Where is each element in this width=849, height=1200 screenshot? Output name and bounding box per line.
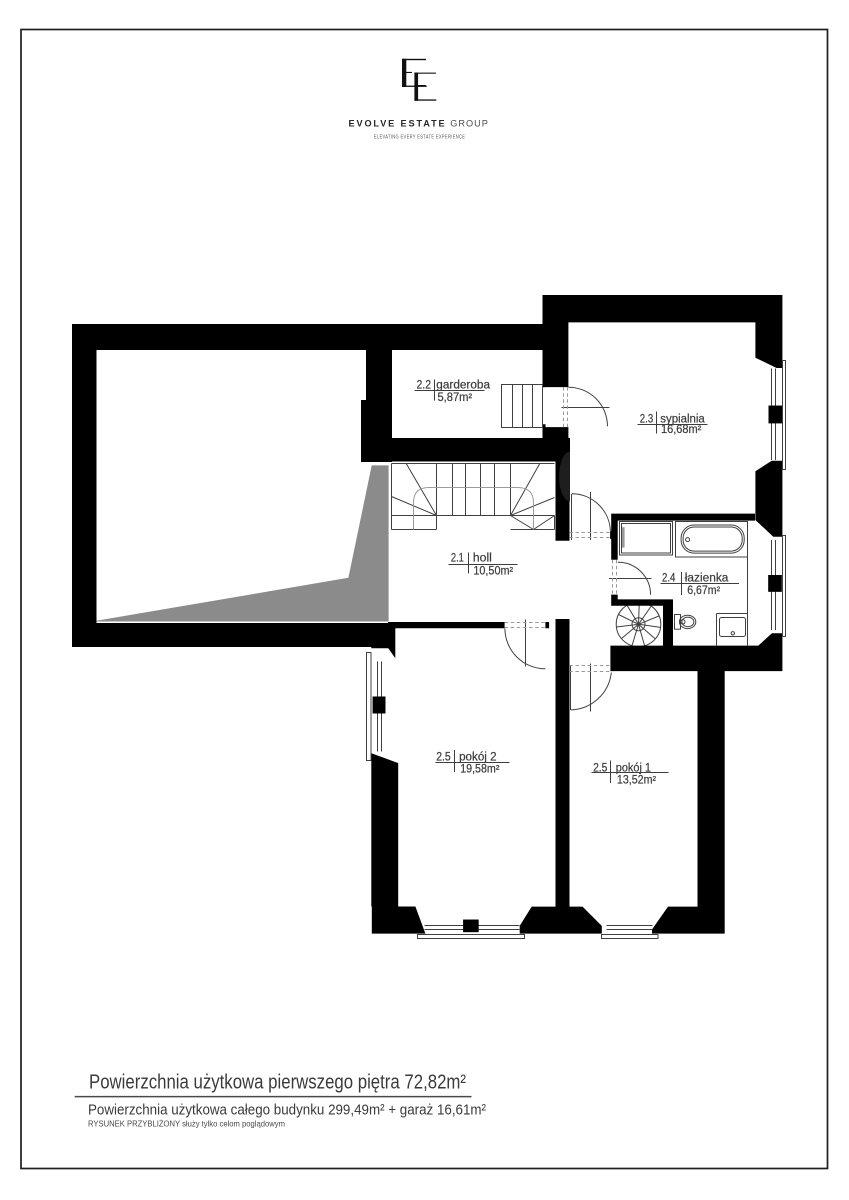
svg-text:5,87m²: 5,87m² [438, 392, 473, 404]
svg-text:garderoba: garderoba [436, 380, 490, 392]
svg-text:10,50m²: 10,50m² [473, 566, 513, 578]
svg-text:19,58m²: 19,58m² [460, 763, 499, 775]
svg-text:Powierzchnia użytkowa pierwsze: Powierzchnia użytkowa pierwszego piętra … [89, 1072, 466, 1094]
svg-text:ELEVATING EVERY ESTATE EXPERIE: ELEVATING EVERY ESTATE EXPERIENCE [374, 135, 466, 141]
svg-text:2.5: 2.5 [436, 752, 451, 764]
svg-text:2.4: 2.4 [662, 572, 676, 584]
svg-text:2.2: 2.2 [417, 380, 432, 392]
svg-text:holl: holl [473, 552, 492, 564]
svg-text:13,52m²: 13,52m² [617, 774, 656, 786]
svg-text:16,68m²: 16,68m² [661, 424, 701, 436]
svg-text:EVOLVE ESTATE: EVOLVE ESTATE [349, 118, 447, 128]
svg-text:2.1: 2.1 [451, 552, 464, 564]
svg-text:Powierzchnia użytkowa całego b: Powierzchnia użytkowa całego budynku 299… [88, 1102, 486, 1119]
svg-text:pokój 2: pokój 2 [459, 752, 497, 764]
svg-text:RYSUNEK PRZYBLIŻONY służy tylk: RYSUNEK PRZYBLIŻONY służy tylko celom po… [88, 1119, 285, 1129]
svg-text:6,67m²: 6,67m² [687, 585, 720, 597]
svg-text:GROUP: GROUP [450, 118, 489, 128]
svg-text:2.3: 2.3 [640, 414, 653, 426]
svg-text:łazienka: łazienka [685, 572, 729, 584]
